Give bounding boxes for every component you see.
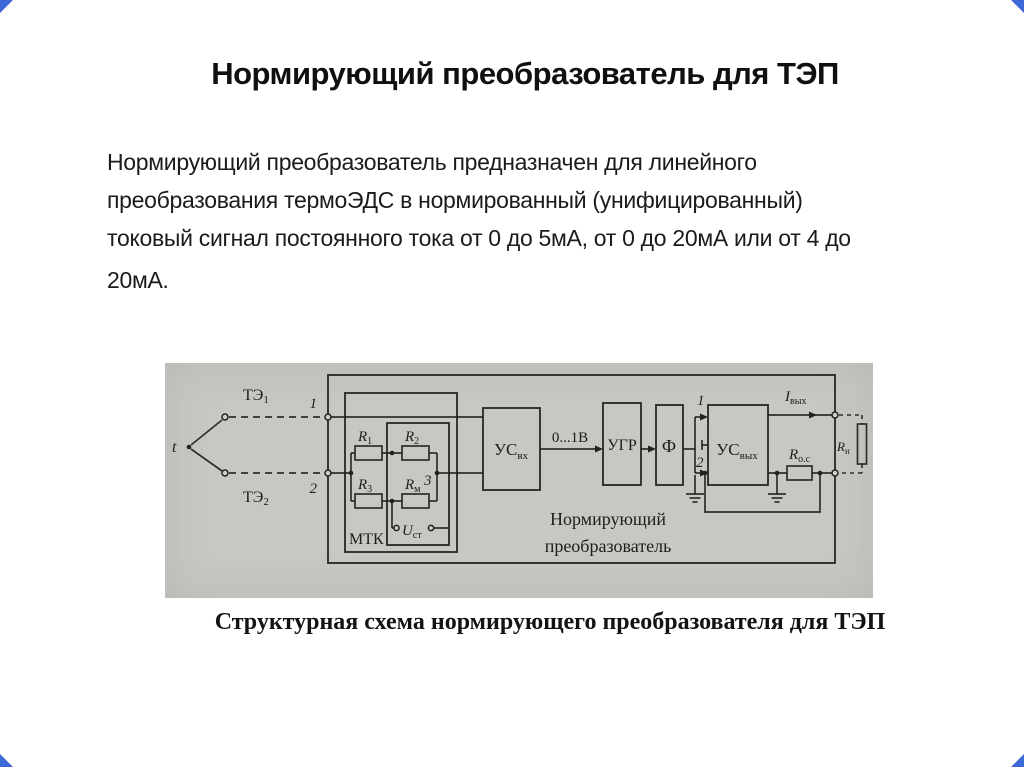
label-in2: 2 xyxy=(696,455,704,471)
feedback-loop xyxy=(705,473,820,512)
ust-terminal-right xyxy=(428,525,433,530)
resistor-r2 xyxy=(402,446,429,460)
body-line: токовый сигнал постоянного тока от 0 до … xyxy=(107,219,970,257)
label-ust: Uст xyxy=(402,523,422,541)
label-i-out: Iвых xyxy=(784,389,806,407)
label-te2: ТЭ2 xyxy=(243,489,269,508)
resistor-r3 xyxy=(355,494,382,508)
label-ugr: УГР xyxy=(607,437,637,454)
input-terminal-2 xyxy=(325,470,331,476)
label-converter-line1: Нормирующий xyxy=(550,509,666,529)
label-rm: Rм xyxy=(404,477,421,495)
label-r3: R3 xyxy=(357,477,372,495)
svg-text:t: t xyxy=(172,439,177,456)
label-us-in: УСвх xyxy=(494,440,529,462)
label-filter: Ф xyxy=(662,436,676,456)
label-te1: ТЭ1 xyxy=(243,387,269,406)
label-node-3: 3 xyxy=(423,473,432,489)
figure-caption: Структурная схема нормирующего преобразо… xyxy=(160,609,940,636)
block-diagram: t ТЭ1 ТЭ2 1 2 xyxy=(165,363,873,598)
ground-symbol-filter xyxy=(686,475,704,502)
resistor-rm xyxy=(402,494,429,508)
corner-triangle-top-left xyxy=(0,0,13,13)
label-us-out: УСвых xyxy=(716,440,758,462)
body-line: Нормирующий преобразователь предназначен… xyxy=(107,143,970,181)
label-r2: R2 xyxy=(404,429,419,447)
load-resistor: Rн xyxy=(836,415,867,473)
input-terminal-1 xyxy=(325,414,331,420)
label-mtk: МТК xyxy=(349,531,384,548)
output-terminal-1 xyxy=(832,412,838,418)
figure-panel: t ТЭ1 ТЭ2 1 2 xyxy=(165,363,873,598)
label-terminal-1: 1 xyxy=(310,396,318,412)
ust-terminal-left xyxy=(394,525,399,530)
label-r-n: Rн xyxy=(836,439,850,456)
body-paragraph: Нормирующий преобразователь предназначен… xyxy=(107,143,970,299)
label-r-oc: Rо.с xyxy=(788,447,811,465)
label-converter-line2: преобразователь xyxy=(545,536,672,556)
resistor-r1 xyxy=(355,446,382,460)
output-terminal-2 xyxy=(832,470,838,476)
label-terminal-2: 2 xyxy=(310,481,318,497)
label-r1: R1 xyxy=(357,429,372,447)
corner-triangle-top-right xyxy=(1011,0,1024,13)
page-title: Нормирующий преобразователь для ТЭП xyxy=(26,56,1024,92)
label-range: 0...1В xyxy=(552,430,588,446)
label-in1: 1 xyxy=(697,393,705,409)
ground-symbol-output xyxy=(768,473,786,502)
body-line: 20мА. xyxy=(107,261,970,299)
feedback-resistor xyxy=(787,466,812,480)
slide: Нормирующий преобразователь для ТЭП Норм… xyxy=(0,0,1024,767)
body-line: преобразования термоЭДС в нормированный … xyxy=(107,181,970,219)
corner-triangle-bottom-right xyxy=(1011,754,1024,767)
thermocouple-junction: t xyxy=(172,414,228,476)
corner-triangle-bottom-left xyxy=(0,754,13,767)
